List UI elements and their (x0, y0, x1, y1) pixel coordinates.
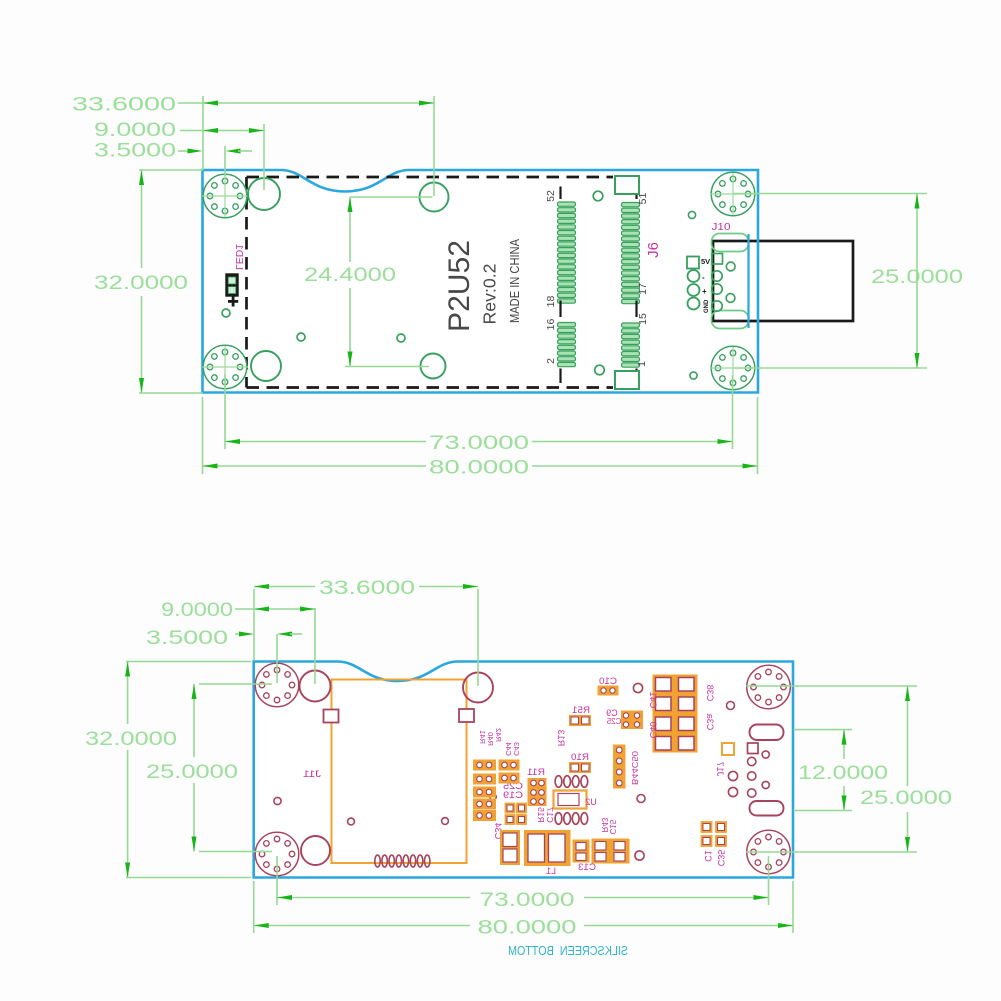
svg-text:J11: J11 (303, 769, 321, 780)
svg-text:R51: R51 (572, 705, 590, 715)
svg-text:C17: C17 (545, 807, 555, 823)
svg-text:R10: R10 (571, 752, 589, 762)
svg-text:R40: R40 (486, 732, 495, 746)
svg-text:J10: J10 (712, 222, 732, 233)
svg-text:C43: C43 (512, 742, 521, 756)
svg-text:73.0000: 73.0000 (429, 432, 529, 454)
svg-text:32.0000: 32.0000 (85, 728, 177, 750)
svg-text:Rev:0.2: Rev:0.2 (480, 264, 500, 325)
svg-text:C15: C15 (608, 819, 617, 834)
svg-text:MADE IN CHINA: MADE IN CHINA (508, 238, 522, 323)
svg-text:32.0000: 32.0000 (94, 272, 188, 294)
svg-text:9.0000: 9.0000 (94, 119, 176, 141)
svg-text:9.0000: 9.0000 (161, 599, 233, 621)
svg-text:J6: J6 (645, 242, 662, 258)
svg-text:GND: GND (704, 299, 710, 313)
svg-text:R41: R41 (478, 730, 487, 744)
svg-text:SILKSCREEN BOTTOM: SILKSCREEN BOTTOM (508, 943, 628, 958)
svg-text:25.0000: 25.0000 (860, 787, 952, 809)
svg-text:C44: C44 (504, 742, 513, 756)
svg-text:LED1: LED1 (233, 244, 244, 270)
svg-text:B44C50: B44C50 (630, 751, 640, 785)
svg-text:2: 2 (545, 358, 557, 364)
svg-text:C25: C25 (606, 717, 621, 726)
svg-text:C38: C38 (705, 685, 715, 702)
svg-text:R13: R13 (556, 730, 566, 747)
svg-text:73.0000: 73.0000 (480, 889, 575, 911)
svg-text:52: 52 (545, 190, 557, 202)
svg-text:24.4000: 24.4000 (304, 264, 396, 286)
svg-text:C35: C35 (716, 850, 726, 867)
svg-text:15: 15 (637, 313, 649, 325)
svg-text:C41: C41 (648, 692, 658, 709)
svg-text:C10: C10 (599, 676, 617, 686)
svg-text:-: - (702, 273, 705, 282)
svg-text:C3a: C3a (705, 714, 715, 731)
svg-text:R11: R11 (527, 767, 545, 777)
svg-text:33.6000: 33.6000 (319, 577, 415, 599)
svg-text:C19: C19 (503, 790, 523, 800)
svg-text:3.5000: 3.5000 (146, 627, 228, 649)
svg-text:18: 18 (545, 296, 557, 308)
svg-text:16: 16 (545, 319, 557, 331)
svg-text:J17: J17 (715, 762, 725, 777)
svg-text:80.0000: 80.0000 (478, 917, 577, 939)
svg-text:R42: R42 (494, 728, 503, 742)
svg-text:25.0000: 25.0000 (146, 761, 238, 783)
svg-text:17: 17 (637, 283, 649, 295)
svg-text:R43: R43 (600, 817, 609, 832)
svg-text:12.0000: 12.0000 (798, 762, 888, 784)
svg-text:L1: L1 (546, 866, 556, 876)
svg-text:1: 1 (636, 361, 648, 367)
svg-text:+: + (702, 287, 707, 296)
svg-text:U2: U2 (585, 797, 597, 807)
svg-text:80.0000: 80.0000 (429, 457, 529, 479)
svg-text:5V: 5V (701, 257, 710, 266)
svg-text:P2U52: P2U52 (443, 240, 476, 332)
svg-text:C40: C40 (648, 722, 658, 739)
svg-text:33.6000: 33.6000 (72, 94, 176, 116)
svg-text:R15: R15 (536, 807, 546, 823)
svg-text:3.5000: 3.5000 (94, 140, 176, 162)
svg-text:C1: C1 (703, 850, 713, 862)
